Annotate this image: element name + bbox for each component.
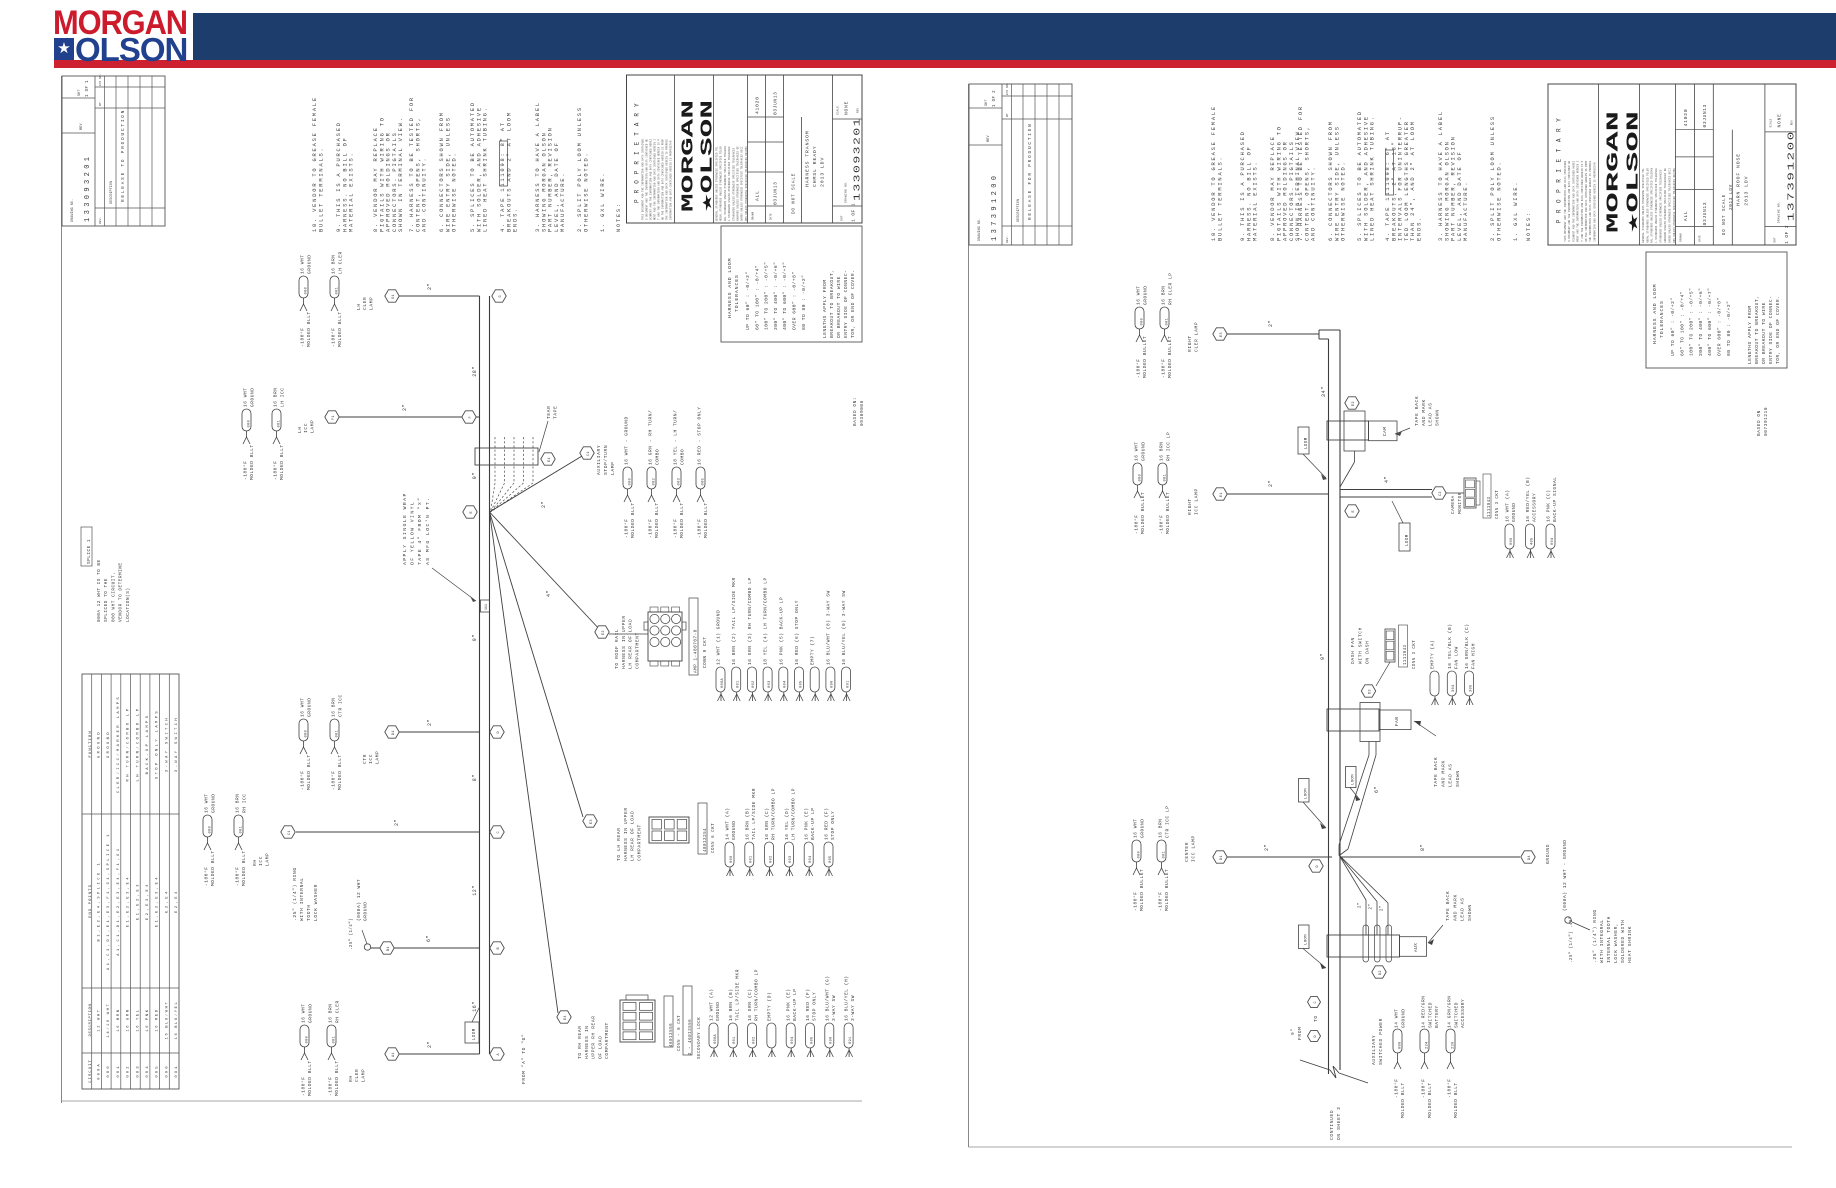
- svg-text:1 OF 2: 1 OF 2: [1784, 225, 1790, 244]
- svg-text:COMBO: COMBO: [679, 449, 685, 465]
- svg-text:LH: LH: [297, 426, 303, 433]
- svg-text:001: 001: [1166, 318, 1170, 326]
- svg-text:TOLERANCES: TOLERANCES: [1659, 300, 1665, 338]
- svg-text:000: 000: [1510, 537, 1514, 545]
- svg-text:133093201: 133093201: [84, 154, 92, 222]
- svg-text:004: 004: [809, 855, 813, 863]
- svg-text:EMPTY (7): EMPTY (7): [810, 636, 816, 665]
- svg-text:16 BRN: 16 BRN: [328, 1003, 334, 1023]
- svg-text:AUXILIARY: AUXILIARY: [1371, 1035, 1377, 1065]
- svg-text:CONTENT, OPENS, SHORTS,: CONTENT, OPENS, SHORTS,: [1304, 125, 1310, 241]
- svg-text:MATERIAL EXISTS.: MATERIAL EXISTS.: [349, 151, 355, 232]
- svg-text:RH TURN/COMBO LP: RH TURN/COMBO LP: [754, 969, 760, 1021]
- svg-text:001: 001: [1163, 851, 1167, 859]
- svg-text:NERAL STANDARDS UNLESS OTHERWI: NERAL STANDARDS UNLESS OTHERWISE SPECIFI…: [720, 146, 723, 221]
- svg-text:DARDS UNLESS OTHERWISE SPECIFI: DARDS UNLESS OTHERWISE SPECIFIED TOLERAN…: [1668, 168, 1671, 243]
- svg-text:2": 2": [1380, 905, 1385, 911]
- svg-text:NOTES:: NOTES:: [616, 202, 622, 232]
- svg-text:APPLY SINGLE WRAP: APPLY SINGLE WRAP: [402, 492, 408, 565]
- svg-text:GROUND: GROUND: [1511, 502, 1517, 522]
- svg-text:03JUN13: 03JUN13: [773, 182, 779, 206]
- svg-text:MOLDED BULLET: MOLDED BULLET: [1140, 492, 1146, 534]
- svg-text:E2: E2: [602, 630, 606, 635]
- svg-text:LAMP: LAMP: [309, 420, 315, 433]
- svg-text:D1: D1: [1220, 855, 1224, 860]
- svg-text:MOLDED BULLET: MOLDED BULLET: [1142, 336, 1148, 378]
- svg-text:DO NOT SCALE: DO NOT SCALE: [792, 173, 797, 214]
- svg-text:INTERVALS FOR UNINTERRUP-: INTERVALS FOR UNINTERRUP-: [1398, 115, 1404, 241]
- svg-text:STOP/TURN: STOP/TURN: [603, 445, 609, 475]
- svg-text:LH REAR OF LOAD: LH REAR OF LOAD: [628, 619, 634, 669]
- svg-text:E3: E3: [590, 819, 594, 824]
- svg-text:A1: A1: [392, 1052, 396, 1057]
- svg-text:ENTRY SIDE OF CONNEC-: ENTRY SIDE OF CONNEC-: [1768, 296, 1774, 364]
- svg-text:GROUND: GROUND: [210, 793, 216, 813]
- svg-text:RH: RH: [348, 1075, 354, 1082]
- svg-text:BACK-UP LAMPS: BACK-UP LAMPS: [146, 714, 150, 775]
- svg-text:GROUND: GROUND: [1400, 1008, 1406, 1028]
- svg-text:PROPRIETARY: PROPRIETARY: [634, 97, 641, 203]
- svg-text:DRAWN: DRAWN: [752, 211, 755, 220]
- svg-text:NONE: NONE: [1777, 113, 1783, 127]
- svg-text:16 WHT: 16 WHT: [300, 254, 306, 274]
- svg-text:SPLICED TO THE: SPLICED TO THE: [104, 578, 109, 622]
- svg-text:MOLDED BLLT: MOLDED BLLT: [337, 311, 343, 347]
- svg-text:-180°F: -180°F: [648, 518, 654, 538]
- svg-text:REV: REV: [1790, 120, 1793, 126]
- svg-text:D3: D3: [1368, 689, 1372, 694]
- svg-text:10. VENDOR TO GREASE FEMALE: 10. VENDOR TO GREASE FEMALE: [312, 96, 318, 232]
- svg-text:PIGTAILS WITH WIRING TO: PIGTAILS WITH WIRING TO: [379, 116, 385, 232]
- svg-text:CLER/ICC/MARKER LAMPS: CLER/ICC/MARKER LAMPS: [116, 695, 121, 793]
- svg-text:CTR: CTR: [362, 754, 368, 764]
- svg-text:OR BREAKOUT TO WIRE: OR BREAKOUT TO WIRE: [1761, 302, 1767, 364]
- svg-text:007391210: 007391210: [1764, 407, 1769, 436]
- svg-text:DRAWN: DRAWN: [1680, 233, 1683, 242]
- svg-text:SPLICE 1: SPLICE 1: [87, 539, 92, 564]
- svg-text:OTHERWISE NOTED.: OTHERWISE NOTED.: [452, 151, 458, 232]
- svg-text:ENTRY SIDE OF CONNEC-: ENTRY SIDE OF CONNEC-: [843, 270, 849, 338]
- svg-text:HEAT SHRINK: HEAT SHRINK: [1627, 926, 1633, 963]
- svg-text:DATE: DATE: [1699, 235, 1702, 242]
- svg-text:REV: REV: [857, 107, 860, 113]
- svg-text:ICC LAMP: ICC LAMP: [1194, 488, 1200, 515]
- svg-text:LH ICC: LH ICC: [279, 387, 285, 407]
- svg-text:GROUND: GROUND: [249, 387, 255, 407]
- svg-text:.25" (1/4") RING: .25" (1/4") RING: [1592, 909, 1598, 963]
- svg-text:000: 000: [209, 826, 213, 834]
- svg-text:LOOM: LOOM: [1305, 788, 1309, 799]
- svg-text:ND THE INFORMATION AND DATA CO: ND THE INFORMATION AND DATA CONTAINED HE…: [662, 139, 665, 220]
- svg-text:BASED ON:: BASED ON:: [853, 397, 858, 426]
- svg-text:.25" (1/4") .42": .25" (1/4") .42": [1569, 916, 1574, 963]
- svg-text:RH ICC: RH ICC: [241, 793, 247, 813]
- svg-text:L STANDARDS UNLESS OTHERWISE S: L STANDARDS UNLESS OTHERWISE SPECIFIED T…: [728, 146, 731, 221]
- svg-text:16 PNK (C): 16 PNK (C): [1546, 489, 1552, 522]
- svg-text:LOCK WASHER,: LOCK WASHER,: [1613, 923, 1619, 963]
- svg-text:GROUND: GROUND: [731, 820, 737, 840]
- svg-text:14 WHT: 14 WHT: [1394, 1008, 1400, 1028]
- svg-text:400" TO 600" : -0/+7": 400" TO 600" : -0/+7": [1707, 288, 1713, 356]
- svg-text:ON SHEET 2: ON SHEET 2: [1336, 1106, 1342, 1140]
- svg-text:80 TO 80 : -0/+2": 80 TO 80 : -0/+2": [801, 275, 807, 330]
- svg-text:UP TO 60" : -0/+2": UP TO 60" : -0/+2": [1670, 297, 1676, 356]
- svg-text:A1,C1,D1,E1,E3,F1,G1,SPLICE 1: A1,C1,D1,E1,E3,F1,G1,SPLICE 1: [107, 832, 111, 970]
- svg-text:1. GXL WIRE.: 1. GXL WIRE.: [1513, 181, 1519, 241]
- svg-text:E1,E2,E3,E4: E1,E2,E3,E4: [156, 875, 160, 927]
- svg-text:GENERAL STANDARDS UNLESS OTHER: GENERAL STANDARDS UNLESS OTHERWISE SPECI…: [716, 146, 719, 221]
- svg-text:DASH FAN: DASH FAN: [1350, 637, 1356, 664]
- svg-text:200" TO 400" : -0/+6": 200" TO 400" : -0/+6": [773, 262, 779, 330]
- svg-text:ECO NO.: ECO NO.: [1006, 83, 1009, 95]
- svg-text:E1,E2,E3: E1,E2,E3: [136, 882, 140, 920]
- svg-text:-180°F: -180°F: [1161, 358, 1167, 378]
- svg-text:16 BLU/WHT: 16 BLU/WHT: [164, 1001, 169, 1040]
- svg-text:16 WHT: 16 WHT: [243, 387, 249, 407]
- svg-text:16 GRN/BLK (C): 16 GRN/BLK (C): [1464, 623, 1470, 669]
- svg-text:000: 000: [306, 1036, 310, 1044]
- svg-text:16 WHT: 16 WHT: [1134, 441, 1140, 461]
- svg-text:REV.: REV.: [1006, 235, 1009, 243]
- svg-text:TAPE: TAPE: [553, 406, 559, 419]
- svg-text:HARN ROOF NOSE: HARN ROOF NOSE: [1736, 153, 1742, 206]
- svg-text:304: 304: [1452, 684, 1456, 692]
- svg-text:9. THIS IS A PURCHASED: 9. THIS IS A PURCHASED: [1240, 130, 1246, 241]
- svg-text:THAN 24", AND 2" AT LOOM: THAN 24", AND 2" AT LOOM: [1410, 120, 1416, 241]
- svg-text:SECONDARY LOCK: SECONDARY LOCK: [698, 1017, 702, 1059]
- svg-text:000A: 000A: [721, 678, 725, 688]
- svg-text:16 YEL: 16 YEL: [136, 1008, 140, 1031]
- svg-text:ND THE INFORMATION AND DATA CO: ND THE INFORMATION AND DATA CONTAINED HE…: [1585, 160, 1588, 241]
- svg-text:004: 004: [1551, 537, 1555, 545]
- svg-text:AMP 1-480707-0: AMP 1-480707-0: [694, 629, 699, 673]
- svg-text:HARNESS AND LOOM: HARNESS AND LOOM: [1652, 284, 1658, 344]
- svg-text:TAPE BACK: TAPE BACK: [1414, 396, 1420, 426]
- svg-text:090: 090: [830, 1036, 834, 1044]
- svg-text:TO: TO: [1313, 1015, 1319, 1022]
- svg-text:ICC LAMP: ICC LAMP: [1191, 835, 1197, 862]
- svg-text:BASED ON: BASED ON: [1757, 410, 1762, 436]
- svg-text:OTHERWISE NOTED.: OTHERWISE NOTED.: [583, 151, 589, 232]
- svg-text:16 WHT: 16 WHT: [301, 1003, 307, 1023]
- svg-text:D: D: [497, 731, 501, 733]
- svg-text:DARDS UNLESS OTHERWISE SPECIFI: DARDS UNLESS OTHERWISE SPECIFIED TOLERAN…: [741, 146, 744, 221]
- svg-text:TOR, OR END OF COVER.: TOR, OR END OF COVER.: [850, 270, 856, 338]
- svg-text:AND MARK: AND MARK: [1440, 760, 1446, 787]
- svg-text:16 WHT - GROUND: 16 WHT - GROUND: [624, 416, 630, 465]
- svg-text:MOLDED BULLET: MOLDED BULLET: [1164, 869, 1170, 911]
- svg-text:S DOCUMENT AND THE INFORMATION: S DOCUMENT AND THE INFORMATION AND DATA …: [646, 139, 649, 220]
- svg-text:CONNECTORS. PIGTAILS: CONNECTORS. PIGTAILS: [1289, 140, 1295, 241]
- svg-text:41020: 41020: [1683, 109, 1689, 127]
- svg-text:16 RED (F): 16 RED (F): [824, 807, 830, 840]
- svg-text:091: 091: [175, 1064, 179, 1077]
- svg-text:4": 4": [1384, 476, 1390, 483]
- svg-text:CIRCUIT: CIRCUIT: [89, 1059, 93, 1083]
- svg-text:PART NUMBER, REVISION: PART NUMBER, REVISION: [548, 126, 554, 232]
- svg-text:-180°F: -180°F: [300, 770, 306, 790]
- svg-text:2": 2": [1369, 904, 1374, 910]
- svg-text:48013254: 48013254: [704, 828, 708, 852]
- svg-text:12 WHT (1) GROUND: 12 WHT (1) GROUND: [716, 610, 722, 665]
- svg-text:16 BRN (B): 16 BRN (B): [744, 807, 750, 840]
- svg-text:16 WHT: 16 WHT: [204, 793, 210, 813]
- svg-text:MOLDED BLLT: MOLDED BLLT: [679, 502, 685, 538]
- svg-text:137391200: 137391200: [991, 173, 999, 241]
- svg-text:APPROVED MOLDINGS OR: APPROVED MOLDINGS OR: [386, 131, 392, 232]
- svg-text:CHMSL READY: CHMSL READY: [812, 145, 818, 187]
- svg-text:LOOM: LOOM: [1305, 934, 1309, 945]
- svg-text:L STANDARDS UNLESS OTHERWISE S: L STANDARDS UNLESS OTHERWISE SPECIFIED T…: [1655, 168, 1658, 243]
- svg-text:SHOWN: SHOWN: [1455, 770, 1461, 787]
- svg-text:-180°F: -180°F: [1447, 1078, 1453, 1098]
- svg-text:-180°F: -180°F: [328, 1076, 334, 1096]
- svg-text:000A: 000A: [714, 1034, 718, 1044]
- svg-text:OVER 600" : -0/+8": OVER 600" : -0/+8": [792, 271, 798, 330]
- svg-text:MOLDED BLLT: MOLDED BLLT: [249, 444, 255, 480]
- svg-text:1X1: 1X1: [484, 604, 488, 610]
- svg-text:E4: E4: [564, 1015, 568, 1020]
- svg-text:VENDOR TO DETERMINE: VENDOR TO DETERMINE: [119, 562, 124, 622]
- svg-text:LH: LH: [356, 303, 362, 310]
- svg-text:2": 2": [1268, 320, 1274, 327]
- svg-text:004: 004: [784, 680, 788, 688]
- svg-text:LEVEL, AND DATE OF: LEVEL, AND DATE OF: [554, 141, 560, 232]
- svg-text:ENDS.: ENDS.: [513, 207, 519, 232]
- svg-text:LEAD AS: LEAD AS: [1448, 764, 1454, 788]
- svg-text:16 RED (6) STOP ONLY: 16 RED (6) STOP ONLY: [794, 600, 800, 665]
- svg-text:002: 002: [653, 478, 657, 486]
- svg-text:E2: E2: [1352, 401, 1356, 406]
- svg-text:WITH SWITCH: WITH SWITCH: [1357, 627, 1363, 664]
- svg-text:2. SPLIT POLY LOOM UNLESS: 2. SPLIT POLY LOOM UNLESS: [1490, 115, 1496, 241]
- svg-text:-180°F: -180°F: [673, 518, 679, 538]
- svg-text:16 BLU/WHT (8) 3-WAY SW: 16 BLU/WHT (8) 3-WAY SW: [825, 590, 831, 665]
- svg-text:F: F: [469, 416, 473, 418]
- svg-text:4. TAPE 1111098: 6" AT: 4. TAPE 1111098: 6" AT: [1385, 130, 1391, 241]
- svg-text:.25" (1/4") RING: .25" (1/4") RING: [292, 867, 298, 921]
- svg-text:COMPARTMENT: COMPARTMENT: [636, 824, 642, 861]
- svg-text:DESCRIPTION: DESCRIPTION: [89, 1003, 93, 1036]
- svg-text:G1: G1: [392, 294, 396, 299]
- svg-text:133093201: 133093201: [853, 117, 863, 201]
- svg-text:16 BRN: 16 BRN: [273, 387, 279, 407]
- svg-text:16 RED: 16 RED: [156, 1008, 160, 1031]
- svg-text:CENTER: CENTER: [1184, 842, 1190, 862]
- svg-text:C: C: [497, 831, 501, 833]
- svg-text:MOLDED BLLT: MOLDED BLLT: [630, 502, 636, 538]
- svg-text:BY: BY: [1006, 113, 1009, 117]
- svg-text:E1,E2,E3,E4: E1,E2,E3,E4: [127, 875, 131, 927]
- svg-text:B1,E2,E4,SPLICE 1: B1,E2,E4,SPLICE 1: [98, 861, 102, 942]
- svg-text:UPPER RH REAR: UPPER RH REAR: [591, 1015, 597, 1059]
- svg-text:CONN 3 CKT: CONN 3 CKT: [1496, 490, 1500, 519]
- svg-text:-180°F: -180°F: [697, 518, 703, 538]
- svg-text:9": 9": [472, 472, 478, 479]
- svg-text:DRAWING NO.: DRAWING NO.: [845, 181, 848, 203]
- svg-text:B1: B1: [387, 946, 391, 951]
- svg-text:D: D: [1316, 865, 1320, 867]
- svg-text:7. HARNESS TO BE TESTED FOR: 7. HARNESS TO BE TESTED FOR: [1298, 105, 1304, 241]
- svg-text:LENGTHS APPLY FROM: LENGTHS APPLY FROM: [822, 279, 828, 338]
- svg-text:RAL STANDARDS UNLESS OTHERWISE: RAL STANDARDS UNLESS OTHERWISE SPECIFIED…: [1651, 168, 1654, 243]
- svg-text:RELEASE TO PRODUCTION: RELEASE TO PRODUCTION: [121, 109, 126, 202]
- svg-text:ICC: ICC: [303, 423, 309, 433]
- svg-text:OCUMENT AND THE INFORMATION AN: OCUMENT AND THE INFORMATION AND DATA CON…: [650, 139, 653, 220]
- svg-text:2 - 46013556: 2 - 46013556: [689, 1019, 693, 1055]
- svg-text:HARNESS. NO BILL OF: HARNESS. NO BILL OF: [1246, 145, 1252, 241]
- svg-text:TAPE BACK: TAPE BACK: [1433, 757, 1439, 787]
- svg-text:001: 001: [1164, 474, 1168, 482]
- svg-text:LEAD AS: LEAD AS: [1460, 898, 1466, 922]
- svg-text:002: 002: [752, 680, 756, 688]
- svg-text:INFORMATION AND DATA CONTAINED: INFORMATION AND DATA CONTAINED HEREIN IS…: [1593, 162, 1596, 242]
- svg-text:CONN - 8 CKT: CONN - 8 CKT: [678, 1015, 682, 1051]
- svg-text:SWITCHED: SWITCHED: [1453, 1002, 1459, 1028]
- svg-text:MOLDED BLLT: MOLDED BLLT: [279, 444, 285, 480]
- svg-text:RH ICC LP: RH ICC LP: [1165, 432, 1171, 461]
- svg-text:16 BRN: 16 BRN: [235, 793, 241, 813]
- svg-text:16 PNK (E): 16 PNK (E): [786, 988, 792, 1021]
- svg-text:-180°F: -180°F: [1394, 1078, 1400, 1098]
- svg-text:16 GRN (C): 16 GRN (C): [747, 988, 753, 1021]
- svg-text:ECO NO.: ECO NO.: [99, 74, 102, 86]
- svg-text:MORGAN: MORGAN: [1605, 111, 1624, 233]
- svg-text:GROUND: GROUND: [307, 1003, 313, 1023]
- svg-text:AND CONTINUITY.: AND CONTINUITY.: [422, 156, 428, 232]
- svg-text:ICC: ICC: [258, 856, 264, 866]
- svg-text:OTHERWISE NOTED.: OTHERWISE NOTED.: [1496, 160, 1502, 241]
- svg-text:LEAD AS: LEAD AS: [1428, 403, 1434, 427]
- svg-text:16 WHT: 16 WHT: [1133, 818, 1139, 838]
- svg-text:3-WAY SW: 3-WAY SW: [850, 995, 856, 1021]
- svg-text:T AND THE INFORMATION AND DATA: T AND THE INFORMATION AND DATA CONTAINED…: [1581, 160, 1584, 241]
- svg-text:000: 000: [107, 1064, 111, 1077]
- svg-text:-180°F: -180°F: [1134, 514, 1140, 534]
- svg-text:60" TO 100" : -0/+4": 60" TO 100" : -0/+4": [754, 265, 760, 330]
- svg-text:5. SPLICES TO BE AUTOMATED: 5. SPLICES TO BE AUTOMATED: [1357, 110, 1363, 241]
- svg-text:MOLDED BLLT: MOLDED BLLT: [334, 1060, 340, 1096]
- svg-text:LOOM: LOOM: [473, 1028, 477, 1040]
- svg-text:OTHERWISE NOTED.: OTHERWISE NOTED.: [1341, 160, 1347, 241]
- svg-text:003: 003: [136, 1064, 140, 1077]
- svg-text:2": 2": [427, 719, 433, 726]
- svg-text:001: 001: [336, 287, 340, 295]
- svg-text:S DOCUMENT AND THE INFORMATION: S DOCUMENT AND THE INFORMATION AND DATA …: [1568, 160, 1571, 241]
- svg-text:C1: C1: [587, 451, 591, 456]
- svg-text:220: 220: [1452, 1041, 1456, 1049]
- svg-text:D4: D4: [1528, 855, 1532, 860]
- svg-text:BULLET TERMINALS.: BULLET TERMINALS.: [1217, 155, 1223, 241]
- svg-text:AND CONTINUITY.: AND CONTINUITY.: [1311, 165, 1317, 241]
- svg-text:LEVEL, AND DATE OF: LEVEL, AND DATE OF: [1457, 150, 1463, 241]
- svg-text:SHOWN IN TERMINAL VIEW.: SHOWN IN TERMINAL VIEW.: [398, 116, 404, 232]
- svg-text:6. CONNECTORS SHOWN FROM: 6. CONNECTORS SHOWN FROM: [1328, 120, 1334, 241]
- svg-text:A1,C1,D1,E2,E3,E4,F1,G1: A1,C1,D1,E2,E3,E4,F1,G1: [117, 846, 121, 955]
- svg-text:ANDARDS UNLESS OTHERWISE SPECI: ANDARDS UNLESS OTHERWISE SPECIFIED TOLER…: [737, 146, 740, 221]
- svg-text:WITH SOLDER, AND ADHESIVE: WITH SOLDER, AND ADHESIVE: [1363, 115, 1369, 241]
- svg-text:TAPE BACK: TAPE BACK: [1445, 891, 1451, 921]
- svg-text:16 BRN: 16 BRN: [1159, 441, 1165, 461]
- svg-text:000: 000: [1138, 851, 1142, 859]
- svg-text:FUNCTION: FUNCTION: [89, 730, 93, 757]
- svg-text:LOOM: LOOM: [1406, 534, 1410, 546]
- svg-text:THIS DOCUMENT AND THE INFORMAT: THIS DOCUMENT AND THE INFORMATION AND DA…: [642, 139, 645, 220]
- svg-text:091: 091: [846, 680, 850, 688]
- svg-text:41020: 41020: [755, 96, 761, 114]
- svg-text:14 WHT (A): 14 WHT (A): [725, 807, 731, 840]
- svg-text:000 WHT CIRCUIT.: 000 WHT CIRCUIT.: [111, 572, 116, 622]
- svg-text:03JUN13: 03JUN13: [1702, 104, 1708, 128]
- svg-text:8": 8": [472, 774, 478, 781]
- svg-text:LINED HEAT SHRINK TUBING.: LINED HEAT SHRINK TUBING.: [1370, 115, 1376, 241]
- svg-text:TO LH REAR: TO LH REAR: [616, 827, 622, 861]
- svg-text:2013 LDV: 2013 LDV: [1729, 184, 1734, 210]
- svg-text:AS MFG LOC'N PT.: AS MFG LOC'N PT.: [425, 497, 431, 565]
- svg-text:090: 090: [165, 1064, 169, 1077]
- svg-text:END POINTS: END POINTS: [89, 884, 93, 918]
- svg-text:SWITCHED POWER: SWITCHED POWER: [1378, 1018, 1384, 1065]
- svg-text:000: 000: [305, 730, 309, 738]
- svg-text:ANDARDS UNLESS OTHERWISE SPECI: ANDARDS UNLESS OTHERWISE SPECIFIED TOLER…: [1664, 168, 1667, 243]
- svg-text:1111943: 1111943: [1488, 497, 1492, 517]
- svg-text:3. HARNESS TO HAVE A LABEL: 3. HARNESS TO HAVE A LABEL: [535, 101, 541, 232]
- svg-text:UP TO 60" : -0/+2": UP TO 60" : -0/+2": [745, 271, 751, 330]
- svg-text:NERAL STANDARDS UNLESS OTHERWI: NERAL STANDARDS UNLESS OTHERWISE SPECIFI…: [1646, 168, 1649, 243]
- svg-text:16 GRN (C): 16 GRN (C): [764, 807, 770, 840]
- svg-text:RIGHT: RIGHT: [1187, 498, 1193, 515]
- svg-text:SHOWN: SHOWN: [1434, 409, 1440, 426]
- svg-text:CTR ICC: CTR ICC: [337, 694, 343, 717]
- svg-text:C1: C1: [288, 830, 292, 835]
- svg-text:12": 12": [472, 885, 478, 896]
- svg-text:REV: REV: [987, 135, 991, 142]
- svg-text:FAN LOW: FAN LOW: [1453, 646, 1459, 669]
- svg-text:GROUND: GROUND: [306, 697, 312, 717]
- svg-text:DRAWING NO.: DRAWING NO.: [977, 218, 981, 241]
- svg-text:001: 001: [240, 826, 244, 834]
- svg-text:SHOWING MORGAN OLSON: SHOWING MORGAN OLSON: [541, 131, 547, 232]
- svg-text:16 BRN (B): 16 BRN (B): [728, 988, 734, 1021]
- svg-text:WITH SOLDER, AND ADHESIVE: WITH SOLDER, AND ADHESIVE: [476, 106, 482, 232]
- svg-text:C: C: [1314, 1001, 1318, 1003]
- svg-text:16 BLU/WHT (G): 16 BLU/WHT (G): [824, 975, 830, 1021]
- svg-text:2": 2": [427, 1041, 433, 1048]
- svg-text:MOLDED BLLT: MOLDED BLLT: [703, 502, 709, 538]
- svg-text:6. CONNECTORS SHOWN FROM: 6. CONNECTORS SHOWN FROM: [439, 111, 445, 232]
- svg-text:GENERAL STANDARDS UNLESS OTHER: GENERAL STANDARDS UNLESS OTHERWISE SPECI…: [1642, 168, 1645, 243]
- svg-text:-180°F: -180°F: [301, 1076, 307, 1096]
- svg-text:TAIL LP/SIDE MKR: TAIL LP/SIDE MKR: [734, 969, 740, 1021]
- svg-text:RELEASE FOR PRODUCTION: RELEASE FOR PRODUCTION: [1028, 122, 1033, 220]
- svg-text:TO RH REAR: TO RH REAR: [577, 1025, 583, 1059]
- svg-text:EMPTY (A): EMPTY (A): [1430, 640, 1436, 669]
- svg-text:DESCRIPTION: DESCRIPTION: [109, 181, 113, 204]
- svg-text:2": 2": [541, 501, 547, 508]
- svg-text:(000A) 12 WHT: (000A) 12 WHT: [356, 879, 362, 921]
- svg-text:INFORMATION AND DATA CONTAINED: INFORMATION AND DATA CONTAINED HEREIN IS…: [670, 140, 673, 220]
- svg-text:MORGAN: MORGAN: [680, 100, 699, 212]
- svg-text:000: 000: [248, 420, 252, 428]
- svg-text:MOLDED BLLT: MOLDED BLLT: [306, 311, 312, 347]
- svg-text:137391200: 137391200: [1786, 130, 1796, 221]
- svg-text:LAMP: LAMP: [610, 462, 616, 475]
- svg-text:001: 001: [336, 730, 340, 738]
- svg-text:REV.: REV.: [99, 216, 102, 224]
- svg-text:PART NUMBER, REVISION: PART NUMBER, REVISION: [1451, 135, 1457, 241]
- svg-text:D: D: [1314, 1035, 1318, 1037]
- svg-text:MANUFACTURE.: MANUFACTURE.: [560, 172, 566, 232]
